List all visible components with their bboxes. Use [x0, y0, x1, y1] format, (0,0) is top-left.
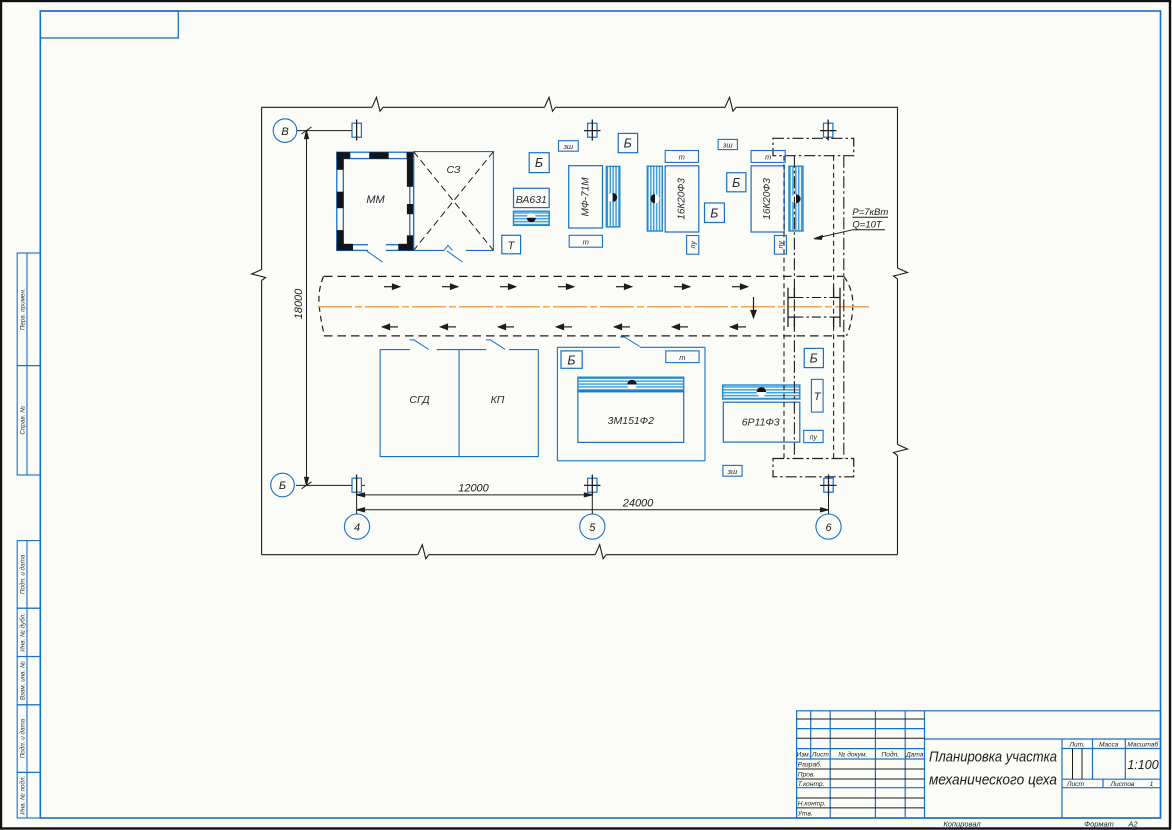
svg-text:Планировка участка: Планировка участка [929, 750, 1057, 766]
svg-text:12000: 12000 [458, 483, 489, 495]
svg-text:Инв. № подл.: Инв. № подл. [19, 776, 27, 815]
svg-text:Б: Б [279, 480, 286, 492]
svg-text:3М151Ф2: 3М151Ф2 [608, 415, 654, 427]
svg-text:Справ. №: Справ. № [20, 406, 27, 435]
svg-text:Б: Б [732, 176, 740, 190]
svg-text:СЗ: СЗ [447, 164, 461, 176]
svg-text:т: т [679, 153, 685, 162]
svg-text:Листов: Листов [1109, 781, 1135, 788]
svg-text:Б: Б [624, 137, 632, 151]
svg-text:Инв. № дубл.: Инв. № дубл. [19, 613, 27, 652]
svg-text:СГД: СГД [409, 394, 430, 406]
svg-text:Разраб.: Разраб. [798, 761, 822, 769]
svg-text:т: т [583, 237, 589, 246]
svg-text:4: 4 [354, 522, 360, 534]
svg-text:т: т [765, 153, 771, 162]
svg-text:6: 6 [825, 522, 832, 534]
svg-text:Изм.: Изм. [796, 751, 810, 758]
svg-text:Взам. инв. №: Взам. инв. № [20, 661, 27, 700]
svg-text:т: т [679, 353, 685, 362]
svg-text:Подп. и дата: Подп. и дата [19, 718, 27, 758]
svg-text:Копировал: Копировал [943, 819, 981, 828]
svg-text:Б: Б [810, 352, 818, 366]
svg-text:Подп. и дата: Подп. и дата [19, 554, 27, 594]
svg-text:Н.контр.: Н.контр. [798, 801, 826, 808]
svg-text:5: 5 [589, 522, 596, 534]
svg-text:зш: зш [727, 467, 738, 476]
svg-text:Лист: Лист [1066, 781, 1084, 788]
svg-text:Лист: Лист [811, 751, 829, 758]
svg-text:Б: Б [535, 156, 543, 170]
svg-text:ММ: ММ [366, 194, 385, 206]
svg-text:ВА631: ВА631 [516, 194, 547, 206]
svg-text:механического цеха: механического цеха [929, 773, 1057, 789]
svg-text:Формат: Формат [1084, 819, 1114, 828]
svg-text:Р=7кВт: Р=7кВт [852, 207, 888, 218]
svg-text:6Р11Ф3: 6Р11Ф3 [742, 416, 780, 428]
svg-text:КП: КП [491, 394, 505, 406]
svg-text:1: 1 [1150, 781, 1154, 788]
svg-text:зш: зш [562, 142, 573, 151]
svg-text:№ докум.: № докум. [838, 750, 867, 758]
svg-text:Дата: Дата [905, 751, 924, 758]
svg-text:18000: 18000 [293, 288, 305, 319]
svg-text:Перв. примен.: Перв. примен. [20, 288, 27, 330]
svg-text:Подп.: Подп. [882, 750, 900, 758]
svg-text:МФ-71М: МФ-71М [581, 177, 592, 217]
svg-text:зш: зш [722, 141, 733, 150]
svg-text:16К20Ф3: 16К20Ф3 [762, 178, 773, 220]
svg-text:16К20Ф3: 16К20Ф3 [677, 178, 688, 220]
svg-text:пу: пу [810, 435, 818, 442]
svg-text:пу: пу [778, 241, 785, 249]
svg-text:Т.контр.: Т.контр. [798, 781, 825, 788]
svg-text:24000: 24000 [622, 497, 654, 509]
svg-text:В: В [281, 126, 288, 138]
svg-text:Масса: Масса [1099, 741, 1119, 748]
svg-text:Б: Б [567, 353, 575, 367]
svg-text:Б: Б [710, 207, 718, 221]
svg-text:1:100: 1:100 [1127, 758, 1158, 772]
svg-text:пу: пу [691, 241, 698, 249]
svg-text:Утв.: Утв. [797, 811, 813, 818]
svg-text:Лит.: Лит. [1068, 741, 1085, 748]
svg-text:Масштаб: Масштаб [1127, 740, 1158, 748]
svg-text:А2: А2 [1127, 819, 1138, 828]
svg-text:Q=10Т: Q=10Т [852, 220, 883, 231]
svg-text:Пров.: Пров. [798, 772, 816, 779]
